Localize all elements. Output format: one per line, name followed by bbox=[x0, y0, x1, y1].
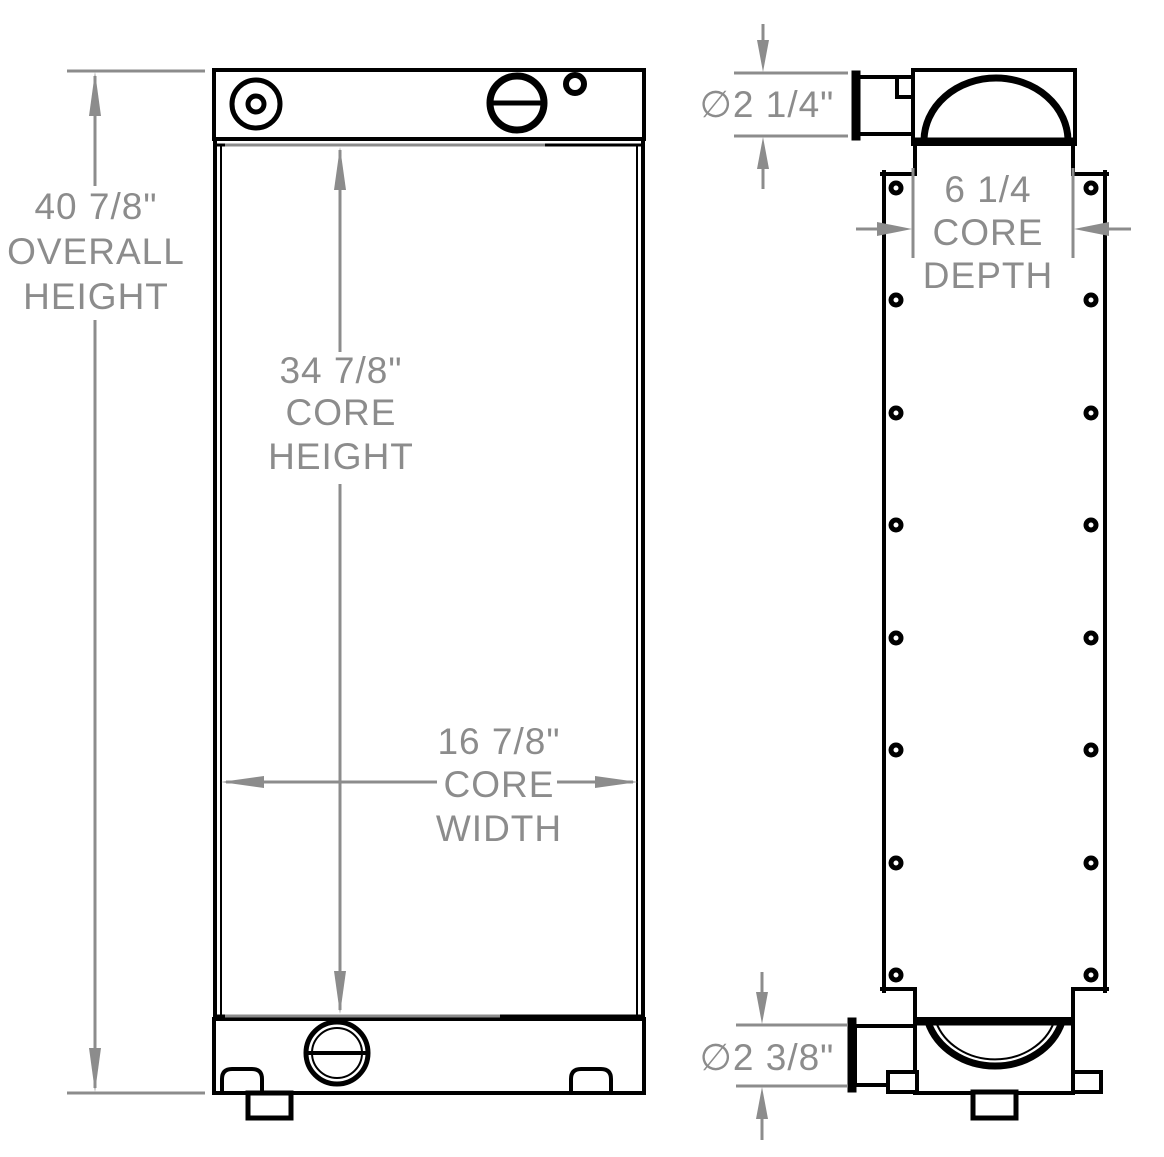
bolt-hole bbox=[891, 408, 901, 418]
core-height-label-2: HEIGHT bbox=[268, 436, 414, 477]
bolt-hole bbox=[1086, 408, 1096, 418]
front-mounting-foot bbox=[248, 1093, 291, 1118]
front-right-bracket bbox=[571, 1069, 611, 1091]
dimension-annotations: 40 7/8" OVERALL HEIGHT 34 7/8" CORE HEIG… bbox=[7, 24, 1131, 1140]
core-width-label-2: WIDTH bbox=[436, 808, 562, 849]
core-height-value: 34 7/8" bbox=[279, 350, 402, 391]
bottom-port-diameter-dimension: ∅2 3/8" bbox=[700, 972, 848, 1140]
top-port-diameter-value: ∅2 1/4" bbox=[700, 84, 835, 125]
arrowhead-down bbox=[334, 971, 346, 1014]
bolt-hole bbox=[1086, 633, 1096, 643]
core-width-value: 16 7/8" bbox=[437, 721, 560, 762]
arrowhead-down bbox=[757, 40, 769, 72]
arrowhead-up bbox=[334, 147, 346, 190]
arrowhead-right bbox=[595, 776, 638, 788]
core-depth-value: 6 1/4 bbox=[944, 169, 1031, 210]
bottom-port-diameter-value: ∅2 3/8" bbox=[700, 1037, 835, 1078]
overall-height-value: 40 7/8" bbox=[34, 186, 157, 227]
core-height-label-1: CORE bbox=[286, 392, 397, 433]
arrowhead-right bbox=[877, 222, 912, 236]
bolt-hole bbox=[891, 970, 901, 980]
front-left-bracket bbox=[222, 1069, 262, 1091]
side-right-tab bbox=[1073, 1072, 1101, 1092]
bolt-hole bbox=[1086, 970, 1096, 980]
bolt-hole bbox=[891, 183, 901, 193]
bolt-hole bbox=[891, 745, 901, 755]
bolt-hole bbox=[1086, 295, 1096, 305]
radiator-dimension-drawing: 40 7/8" OVERALL HEIGHT 34 7/8" CORE HEIG… bbox=[0, 0, 1164, 1157]
bolt-hole bbox=[891, 633, 901, 643]
bolt-hole bbox=[891, 295, 901, 305]
arrowhead-left bbox=[221, 776, 264, 788]
arrowhead-down bbox=[756, 992, 768, 1024]
bolt-hole bbox=[891, 520, 901, 530]
side-mounting-foot bbox=[973, 1092, 1016, 1118]
bolt-hole bbox=[1086, 745, 1096, 755]
arrowhead-up bbox=[89, 72, 101, 116]
core-width-dimension: 16 7/8" CORE WIDTH bbox=[221, 721, 638, 849]
bolt-hole bbox=[1086, 183, 1096, 193]
arrowhead-down bbox=[89, 1048, 101, 1092]
core-width-label-1: CORE bbox=[444, 764, 555, 805]
bolt-hole bbox=[891, 858, 901, 868]
core-depth-label-2: DEPTH bbox=[923, 255, 1053, 296]
overall-height-dimension: 40 7/8" OVERALL HEIGHT bbox=[7, 71, 205, 1093]
technical-drawing-canvas: 40 7/8" OVERALL HEIGHT 34 7/8" CORE HEIG… bbox=[0, 0, 1164, 1157]
core-height-dimension: 34 7/8" CORE HEIGHT bbox=[225, 145, 545, 1016]
top-port-diameter-dimension: ∅2 1/4" bbox=[700, 24, 848, 189]
overall-height-label-1: OVERALL bbox=[7, 231, 185, 272]
bolt-hole bbox=[1086, 858, 1096, 868]
front-view bbox=[214, 70, 644, 1118]
bolt-hole bbox=[1086, 520, 1096, 530]
overall-height-label-2: HEIGHT bbox=[23, 276, 169, 317]
arrowhead-left bbox=[1074, 222, 1109, 236]
core-depth-label-1: CORE bbox=[933, 212, 1044, 253]
side-left-tab bbox=[888, 1072, 917, 1092]
